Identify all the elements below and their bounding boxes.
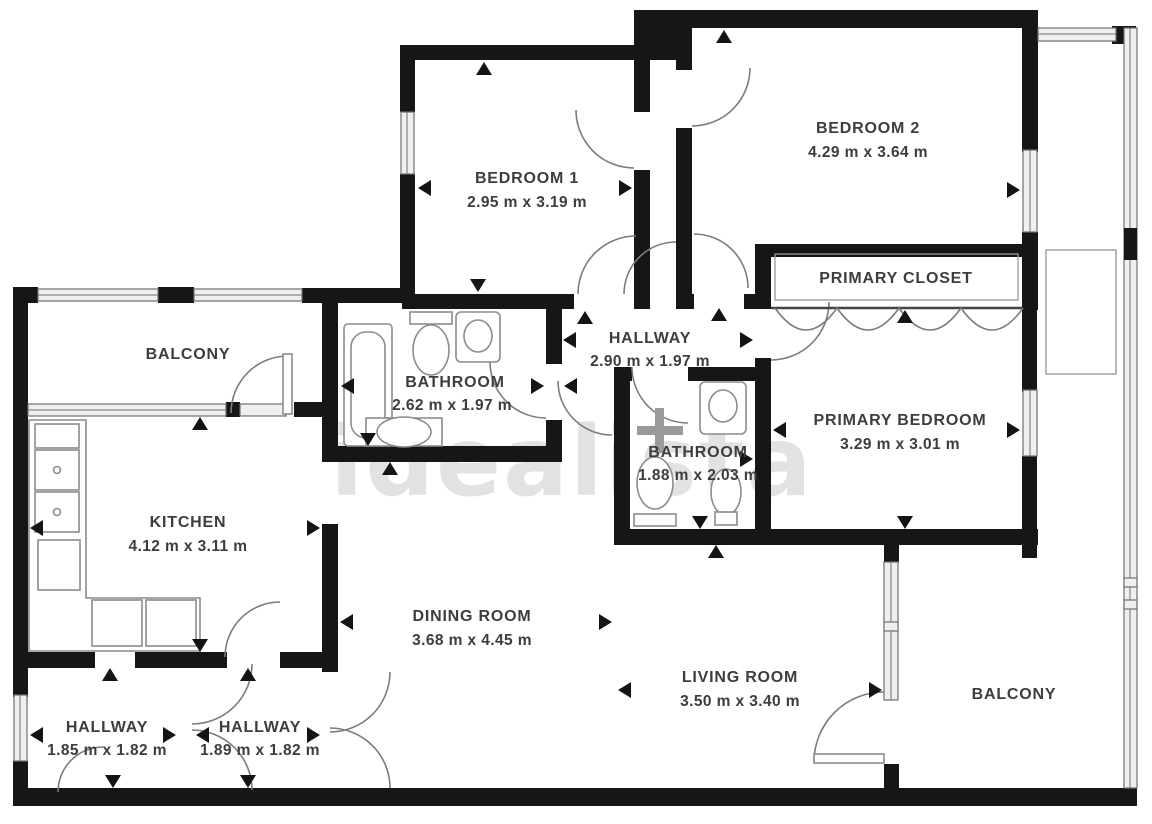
floor-plan-image: idealista [0, 0, 1152, 824]
door-arc-niche-bedroom-1 [576, 110, 634, 168]
room-label-primary-bedroom: PRIMARY BEDROOM 3.29 m x 3.01 m [814, 412, 987, 453]
svg-text:DINING ROOM: DINING ROOM [412, 608, 531, 625]
svg-text:BALCONY: BALCONY [146, 346, 231, 363]
room-label-living-room: LIVING ROOM 3.50 m x 3.40 m [680, 669, 800, 710]
room-label-balcony-right: BALCONY [972, 686, 1057, 703]
room-label-bedroom-2: BEDROOM 2 4.29 m x 3.64 m [808, 120, 928, 161]
room-label-balcony-top: BALCONY [146, 346, 231, 363]
room-label-bedroom-1: BEDROOM 1 2.95 m x 3.19 m [467, 170, 587, 211]
svg-text:1.89 m x 1.82 m: 1.89 m x 1.82 m [200, 742, 320, 759]
room-label-hallway-left: HALLWAY 1.85 m x 1.82 m [47, 719, 167, 759]
svg-text:BEDROOM 2: BEDROOM 2 [816, 120, 920, 137]
door-leaf-balcony-top [283, 354, 292, 414]
door-arc-hallway-dining-top [330, 672, 390, 732]
svg-text:4.29 m x 3.64 m: 4.29 m x 3.64 m [808, 144, 928, 161]
room-label-primary-closet: PRIMARY CLOSET [819, 270, 972, 287]
svg-text:2.90 m x 1.97 m: 2.90 m x 1.97 m [590, 353, 710, 370]
door-arc-hallway-divider-top [192, 664, 252, 724]
door-arc-primary-bedroom [771, 302, 829, 360]
svg-text:4.12 m x 3.11 m: 4.12 m x 3.11 m [129, 538, 248, 555]
svg-text:3.50 m x 3.40 m: 3.50 m x 3.40 m [680, 693, 800, 710]
svg-text:3.68 m x 4.45 m: 3.68 m x 4.45 m [412, 632, 532, 649]
room-label-hallway-center: HALLWAY 2.90 m x 1.97 m [590, 330, 710, 370]
svg-text:HALLWAY: HALLWAY [219, 719, 301, 736]
sink-icon [700, 382, 746, 434]
door-arc-bedroom-1 [578, 236, 636, 294]
toilet-icon [410, 312, 452, 375]
svg-text:PRIMARY BEDROOM: PRIMARY BEDROOM [814, 412, 987, 429]
door-arc-hallway-divider-bottom [192, 730, 252, 790]
door-leaf-balcony-right [814, 754, 884, 763]
svg-text:1.88 m x 2.03 m: 1.88 m x 2.03 m [638, 467, 758, 484]
room-label-kitchen: KITCHEN 4.12 m x 3.11 m [129, 514, 248, 555]
svg-text:BALCONY: BALCONY [972, 686, 1057, 703]
door-arc-niche-bedroom-2 [692, 68, 750, 126]
svg-text:2.62 m x 1.97 m: 2.62 m x 1.97 m [392, 397, 512, 414]
svg-text:HALLWAY: HALLWAY [609, 330, 691, 347]
svg-text:1.85 m x 1.82 m: 1.85 m x 1.82 m [47, 742, 167, 759]
terrace-platform [1046, 250, 1116, 374]
door-arc-bedroom-2-entry [694, 234, 748, 288]
kitchen-counter-icon [29, 420, 200, 651]
sink-icon [456, 312, 500, 362]
room-label-dining-room: DINING ROOM 3.68 m x 4.45 m [412, 608, 532, 649]
svg-text:3.29 m x 3.01 m: 3.29 m x 3.01 m [840, 436, 960, 453]
svg-text:2.95 m x 3.19 m: 2.95 m x 3.19 m [467, 194, 587, 211]
svg-text:HALLWAY: HALLWAY [66, 719, 148, 736]
svg-text:PRIMARY CLOSET: PRIMARY CLOSET [819, 270, 972, 287]
door-arc-balcony-right [814, 692, 884, 762]
svg-text:KITCHEN: KITCHEN [150, 514, 227, 531]
svg-text:BATHROOM: BATHROOM [405, 374, 504, 391]
vanity-sink-icon [366, 417, 442, 447]
closet-accordion-doors-icon [775, 308, 1023, 330]
floor-plan-svg: idealista [0, 0, 1152, 824]
door-arc-hallway-dining-bottom [330, 728, 390, 788]
svg-text:BATHROOM: BATHROOM [648, 444, 747, 461]
door-arc-kitchen [225, 602, 280, 657]
svg-text:LIVING ROOM: LIVING ROOM [682, 669, 798, 686]
room-label-hallway-mid: HALLWAY 1.89 m x 1.82 m [200, 719, 320, 759]
room-label-bathroom-main: BATHROOM 2.62 m x 1.97 m [392, 374, 512, 414]
svg-text:BEDROOM 1: BEDROOM 1 [475, 170, 579, 187]
